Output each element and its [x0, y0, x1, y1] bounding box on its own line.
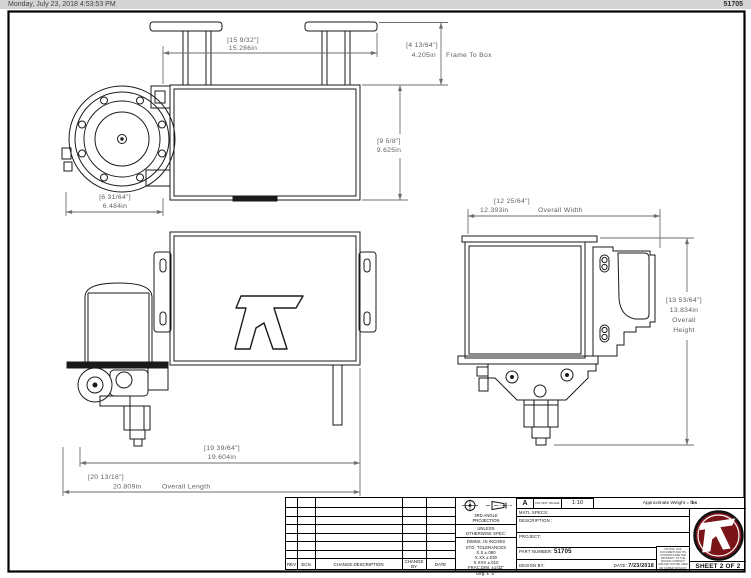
bracket-cutout: [618, 253, 649, 319]
drawing-canvas: [15 9/32"] 15.286in [4 13/64"] 4.205in F…: [0, 0, 751, 578]
rev-row-line: [286, 550, 455, 551]
dim-motor-length-fraction: [6 31/64"]: [99, 194, 131, 201]
dim-tank-length-fraction: [19 39/64"]: [204, 445, 240, 452]
dim-frame-width-decimal: 15.286in: [229, 45, 257, 52]
tolerance-spec-intro: UNLESS OTHERWISE SPEC:: [456, 525, 516, 538]
frame-bar-right: [305, 22, 377, 31]
rev-row-line: [286, 533, 455, 534]
dim-frame-width-fraction: [15 9/32"]: [227, 37, 259, 44]
dim-overall-width-decimal: 12.393in: [480, 207, 508, 214]
compressor-front: [67, 362, 168, 446]
view-side: [458, 236, 655, 445]
frame-bar-left: [150, 22, 222, 31]
title-block: REV ECN CHANGE DESCRIPTION CHANGE BY DAT…: [285, 497, 745, 570]
drawing-size-cell: A: [516, 498, 533, 508]
dim-overall-height-decimal: 13.834in: [670, 307, 698, 314]
view-top: [62, 22, 377, 201]
ecn-col-header: ECN: [297, 558, 315, 571]
matl-specs-cell: MATL SPECS:: [516, 508, 689, 516]
view-front: [67, 232, 376, 446]
change-by-col-header: CHANGE BY: [402, 558, 426, 571]
dim-box-depth-decimal: 9.625in: [377, 147, 401, 154]
frame-leg-front: [333, 365, 342, 425]
dim-frame-to-box-fraction: [4 13/64"]: [406, 42, 438, 49]
tolerance-values: DIMNS. IN INCHES STD. TOLERANCES X.X ±.0…: [456, 538, 516, 575]
dim-frame-to-box-note: Frame To Box: [446, 52, 492, 59]
weight-cell: Approximate Weight = lbs: [593, 498, 746, 508]
tank-box-top: [170, 85, 360, 200]
motor-front: [85, 283, 152, 362]
dim-frame-to-box-decimal: 4.205in: [412, 52, 436, 59]
tank-box-front: [170, 232, 360, 365]
dim-tank-length-decimal: 19.604in: [208, 454, 236, 461]
logo-cell: [689, 508, 746, 561]
sheet-number-cell: SHEET 2 OF 2: [689, 561, 746, 571]
projection-tolerance-cell: 3RD ANGLE PROJECTION UNLESS OTHERWISE SP…: [455, 498, 516, 571]
rev-row-line: [286, 507, 455, 508]
dim-overall-width-fraction: [12 25/64"]: [494, 198, 530, 205]
change-description-col-header: CHANGE DESCRIPTION: [315, 558, 402, 571]
k-emblem-outline: [235, 296, 303, 349]
motor-top: [62, 86, 175, 192]
project-cell: PROJECT:: [516, 532, 689, 547]
dim-overall-length-note: Overall Length: [162, 484, 210, 491]
compressor-side: [477, 364, 596, 445]
part-number-cell: PART NUMBER: 51705: [516, 547, 656, 559]
do-not-scale-cell: DO NOT SCALE DRAWING: [533, 498, 561, 508]
dim-overall-length-fraction: [20 13/16"]: [88, 474, 124, 481]
kleinn-logo: [691, 510, 746, 561]
mount-tab-left: [154, 252, 171, 332]
scale-cell: 1:10: [561, 498, 593, 508]
design-by-cell: DESIGN BY: DATE: 7/23/2018: [516, 559, 656, 571]
notice-cell: NOTICE: THIS DOCUMENT AND ITS CONTENTS A…: [656, 546, 689, 571]
rev-row-line: [286, 516, 455, 517]
date-col-header: DATE: [426, 558, 455, 571]
dim-overall-length-decimal: 20.809in: [113, 484, 141, 491]
rev-row-line: [286, 541, 455, 542]
mount-tab-right: [359, 252, 376, 332]
dim-overall-height-note1: Overall: [672, 317, 696, 324]
rev-col-header: REV: [286, 558, 297, 571]
third-angle-projection-symbol: [458, 499, 514, 512]
tank-box-side: [465, 242, 585, 358]
dim-motor-length-decimal: 6.484in: [103, 203, 127, 210]
dim-overall-height-note2: Height: [673, 327, 694, 334]
description-cell: DESCRIPTION :: [516, 516, 689, 532]
dim-overall-height-fraction: [13 53/64"]: [666, 297, 702, 304]
dim-overall-width-note: Overall Width: [538, 207, 583, 214]
dim-box-depth-fraction: [9 5/8"]: [377, 138, 401, 145]
drawing-page: Monday, July 23, 2018 4:53:53 PM 51705: [0, 0, 751, 578]
rev-row-line: [286, 524, 455, 525]
projection-label: 3RD ANGLE PROJECTION: [456, 513, 516, 525]
